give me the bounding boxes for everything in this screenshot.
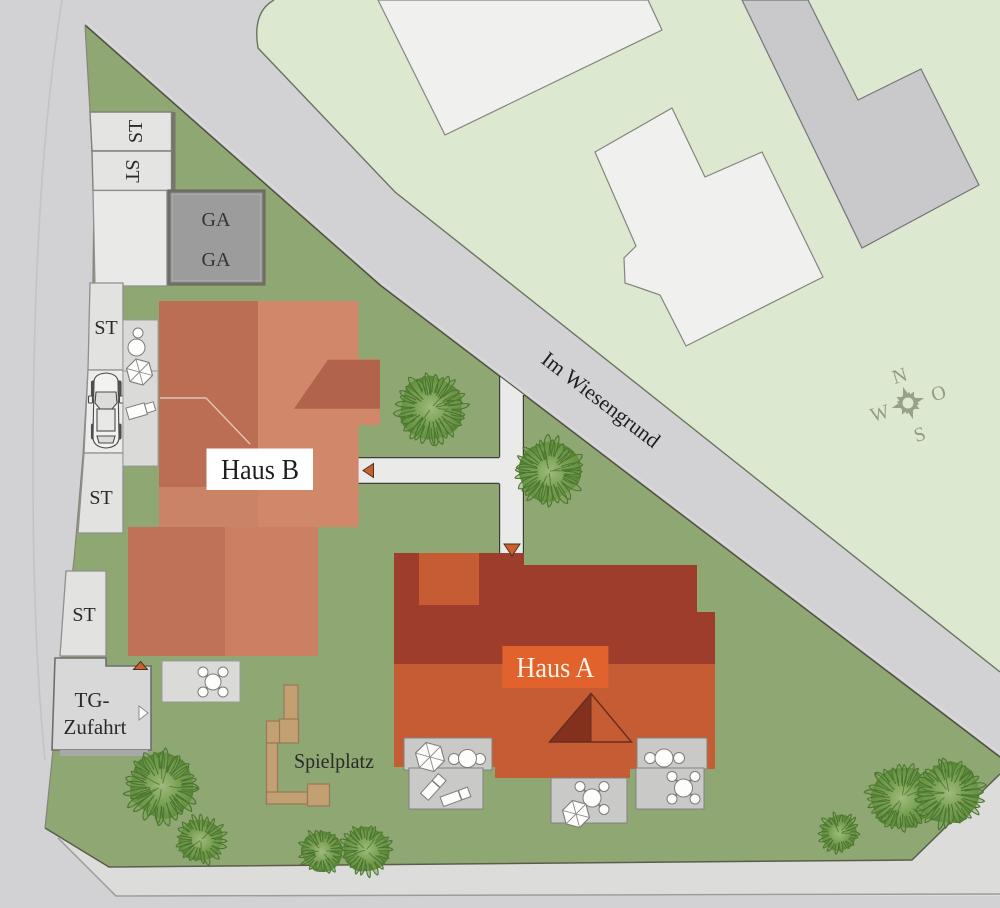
svg-text:ST: ST: [121, 159, 143, 182]
svg-text:Haus B: Haus B: [221, 454, 299, 486]
svg-text:TG-: TG-: [75, 688, 110, 712]
svg-text:ST: ST: [94, 317, 117, 339]
svg-text:GA: GA: [202, 249, 231, 271]
svg-text:ST: ST: [72, 604, 95, 626]
svg-text:Spielplatz: Spielplatz: [294, 749, 374, 773]
svg-text:Haus A: Haus A: [516, 652, 594, 684]
svg-text:Zufahrt: Zufahrt: [64, 715, 127, 739]
svg-text:ST: ST: [89, 487, 112, 509]
svg-text:GA: GA: [202, 209, 231, 231]
svg-text:ST: ST: [125, 120, 147, 143]
